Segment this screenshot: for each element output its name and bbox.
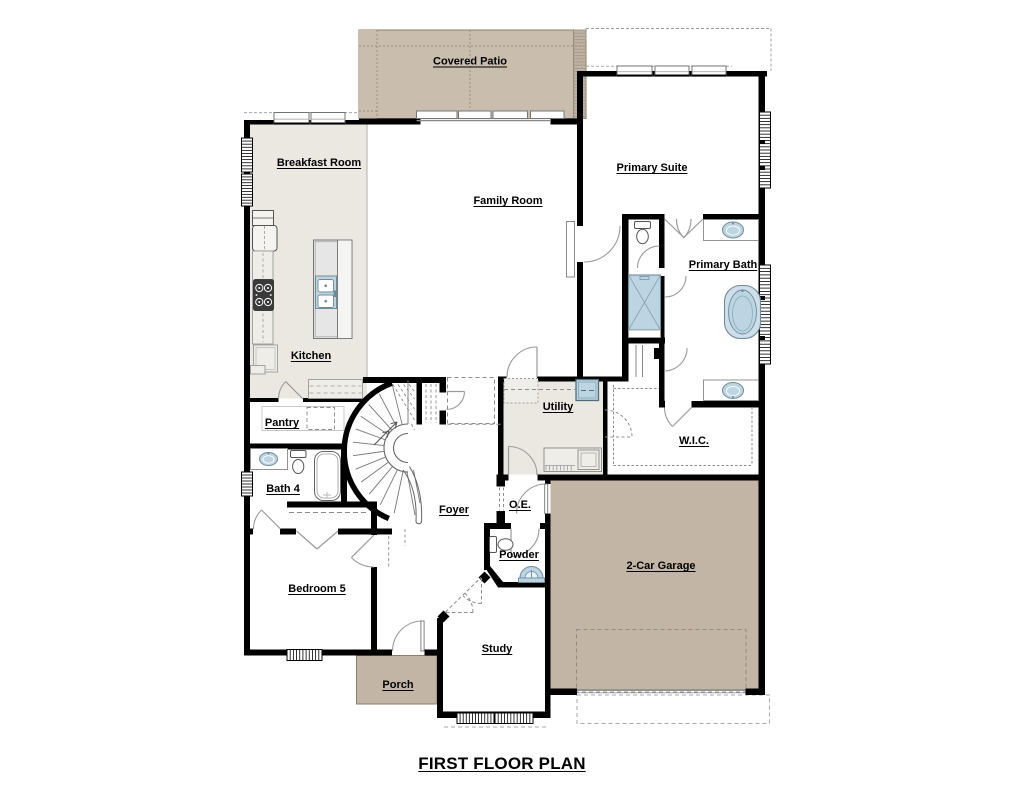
svg-text:Kitchen: Kitchen	[291, 350, 332, 362]
svg-text:Primary Suite: Primary Suite	[617, 162, 688, 174]
svg-text:FIRST FLOOR PLAN: FIRST FLOOR PLAN	[418, 754, 586, 773]
svg-text:Bedroom 5: Bedroom 5	[288, 583, 345, 595]
svg-text:Foyer: Foyer	[439, 504, 470, 516]
svg-text:Study: Study	[482, 643, 513, 655]
svg-text:Covered Patio: Covered Patio	[433, 56, 507, 68]
svg-text:O.E.: O.E.	[509, 499, 531, 511]
svg-text:Powder: Powder	[499, 549, 539, 561]
svg-text:Primary Bath: Primary Bath	[689, 259, 758, 271]
svg-text:Bath 4: Bath 4	[266, 483, 301, 495]
svg-text:Pantry: Pantry	[265, 417, 300, 429]
svg-text:2-Car Garage: 2-Car Garage	[626, 560, 695, 572]
svg-text:Family Room: Family Room	[473, 195, 542, 207]
svg-text:Porch: Porch	[382, 679, 413, 691]
svg-text:Breakfast Room: Breakfast Room	[277, 157, 362, 169]
svg-text:W.I.C.: W.I.C.	[679, 435, 709, 447]
svg-text:Utility: Utility	[543, 401, 574, 413]
